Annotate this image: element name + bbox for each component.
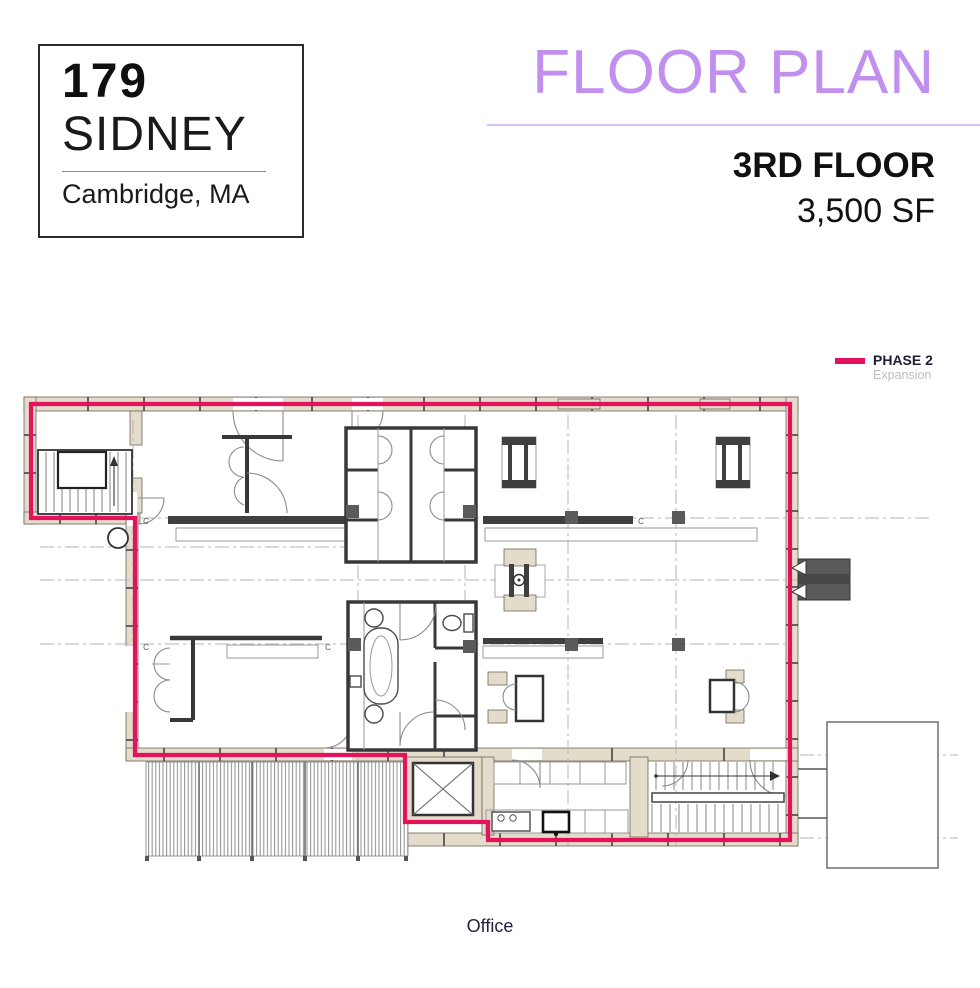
round-column [108,528,128,548]
stair-direction-arrow-icon [770,771,780,781]
elevator-shaft [404,757,482,821]
bathroom-cluster-lower [348,602,476,750]
connector-bridge [792,559,850,600]
columns [565,511,685,651]
svg-text:C: C [638,517,644,526]
restroom-cluster-upper [346,428,476,562]
kitchen [486,762,628,836]
svg-text:C: C [143,517,149,526]
range-appliance [543,812,569,832]
roof-deck-hatch [145,762,408,861]
stair-lower-right [652,762,784,832]
flyer-page: { "colors": { "accent_pink": "#e4125c", … [0,0,980,988]
workstations [488,670,749,723]
office-label: Office [0,916,980,937]
adjacent-structure [798,722,938,868]
window-symbols [502,437,750,488]
svg-text:C: C [143,643,149,652]
svg-text:C: C [325,643,331,652]
room-upper-left [222,437,292,513]
floor-plan-drawing: C C C C [0,0,980,988]
closet-lower-left [152,638,322,720]
stairwell-upper-left [38,450,132,514]
central-column-brace [495,549,545,611]
